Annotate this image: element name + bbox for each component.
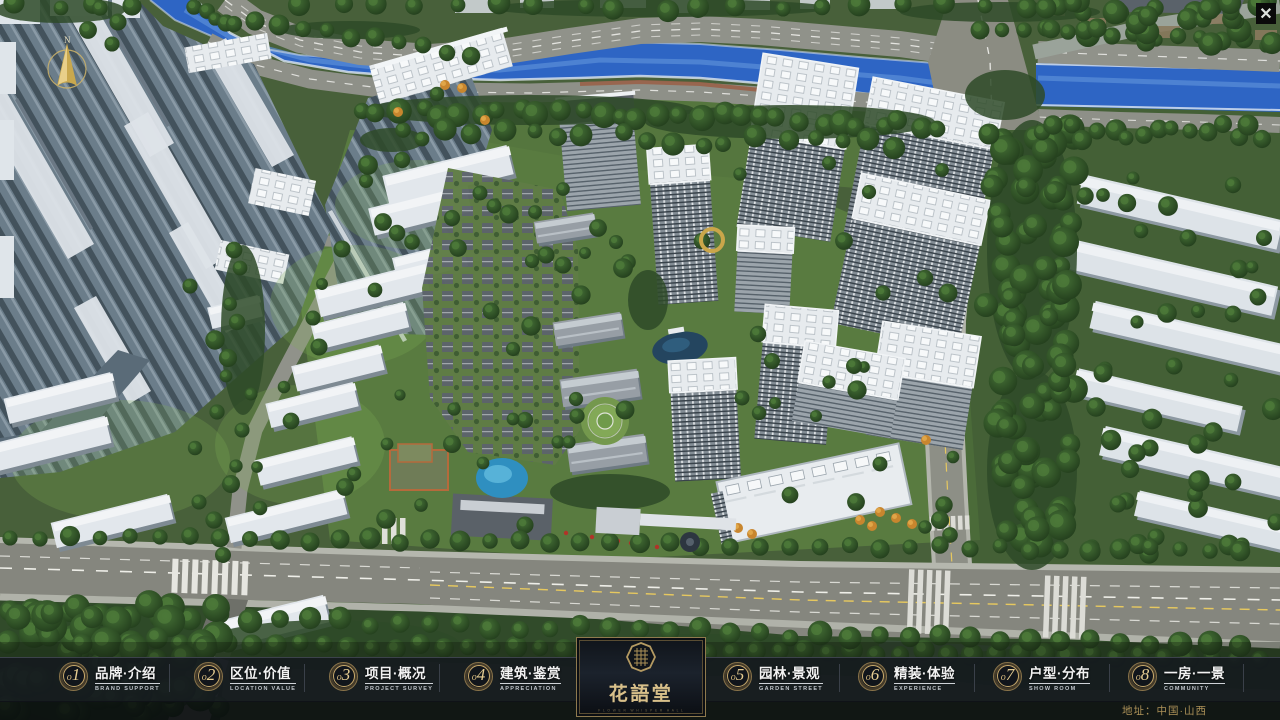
svg-text:N: N bbox=[64, 35, 71, 45]
